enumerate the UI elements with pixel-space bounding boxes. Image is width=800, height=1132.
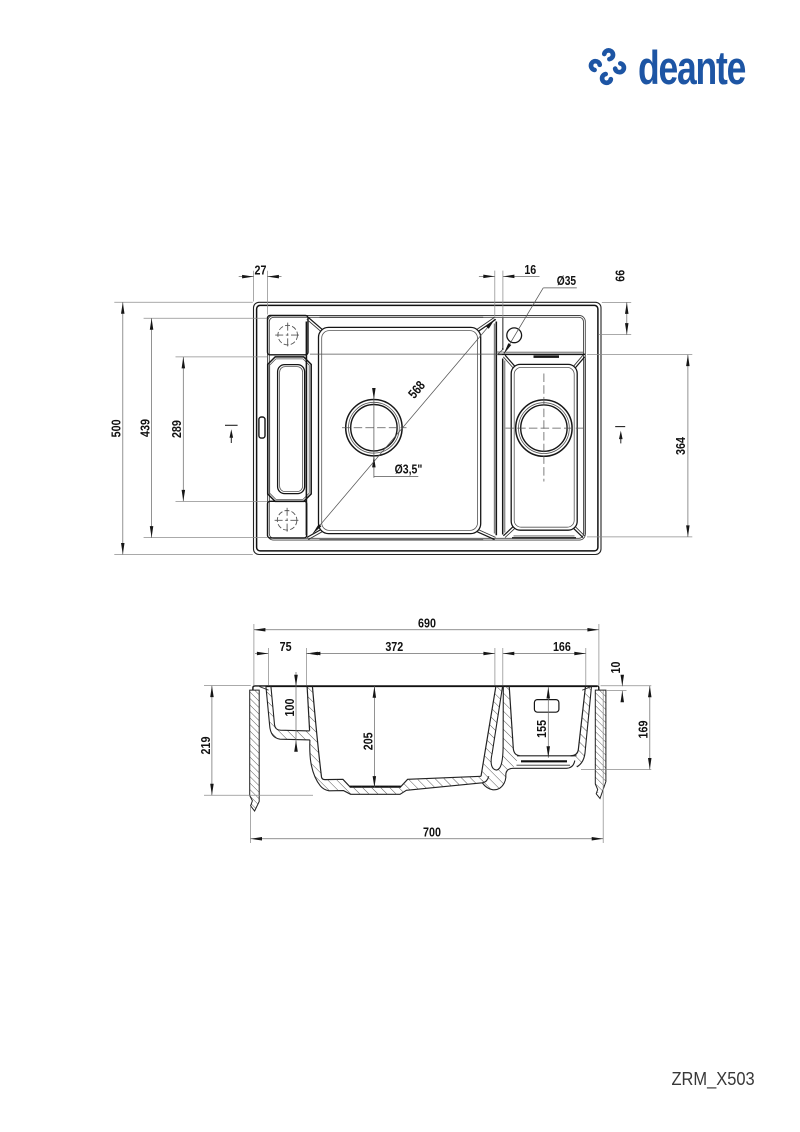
svg-text:100: 100 xyxy=(282,699,297,717)
svg-text:289: 289 xyxy=(169,420,184,438)
svg-text:500: 500 xyxy=(109,419,124,437)
svg-text:372: 372 xyxy=(385,639,403,654)
svg-text:219: 219 xyxy=(198,737,213,755)
svg-text:364: 364 xyxy=(673,437,688,455)
svg-text:166: 166 xyxy=(553,639,571,654)
svg-text:66: 66 xyxy=(613,270,628,282)
svg-text:690: 690 xyxy=(418,615,436,630)
svg-text:deante: deante xyxy=(638,41,745,94)
svg-text:205: 205 xyxy=(360,732,375,750)
svg-text:169: 169 xyxy=(636,721,651,739)
svg-text:10: 10 xyxy=(608,662,623,674)
svg-text:155: 155 xyxy=(534,719,549,737)
svg-text:568: 568 xyxy=(405,378,428,401)
svg-text:439: 439 xyxy=(138,419,153,437)
svg-text:ZRM_X503: ZRM_X503 xyxy=(672,1068,755,1090)
svg-text:27: 27 xyxy=(255,262,267,277)
svg-text:Ø35: Ø35 xyxy=(557,273,577,288)
svg-text:16: 16 xyxy=(524,262,536,277)
svg-text:700: 700 xyxy=(423,824,441,839)
svg-text:75: 75 xyxy=(280,639,292,654)
svg-text:Ø3,5": Ø3,5" xyxy=(395,462,423,477)
